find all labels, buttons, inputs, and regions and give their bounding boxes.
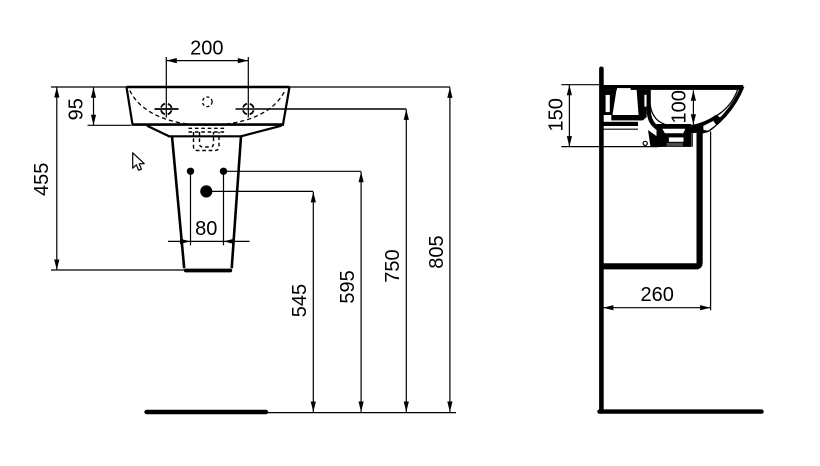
svg-text:545: 545	[289, 284, 311, 317]
svg-text:200: 200	[190, 37, 223, 59]
svg-text:750: 750	[382, 249, 404, 282]
svg-text:455: 455	[31, 163, 53, 196]
svg-text:805: 805	[426, 235, 448, 268]
svg-text:150: 150	[545, 98, 567, 131]
svg-text:100: 100	[669, 90, 691, 123]
svg-text:260: 260	[641, 284, 674, 306]
svg-text:595: 595	[337, 270, 359, 303]
svg-text:95: 95	[66, 98, 88, 120]
svg-text:80: 80	[195, 218, 217, 240]
